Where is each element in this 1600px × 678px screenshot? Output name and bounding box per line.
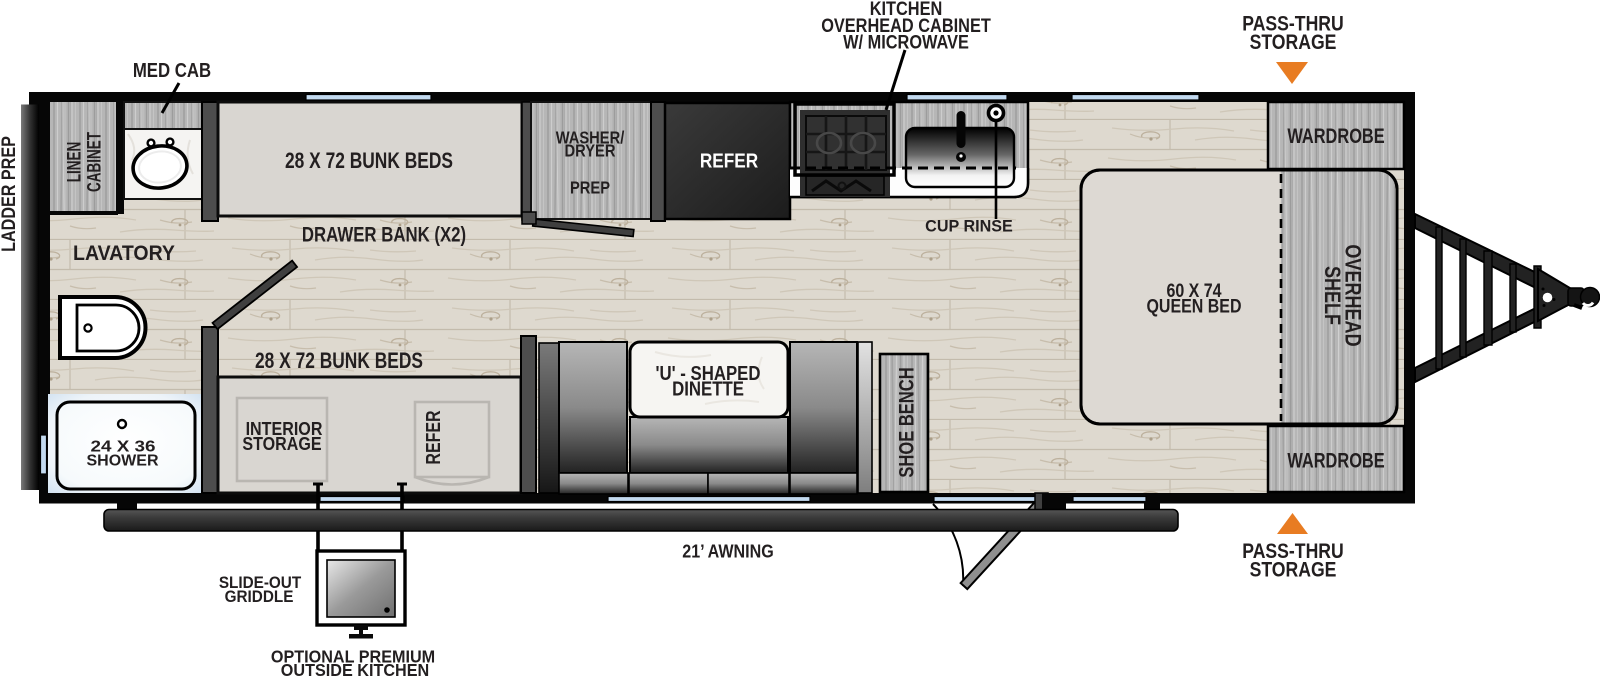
svg-text:REFER: REFER	[422, 410, 444, 464]
svg-text:LAVATORY: LAVATORY	[73, 242, 175, 265]
svg-text:REFER: REFER	[700, 149, 759, 172]
svg-text:28 X 72 BUNK BEDS: 28 X 72 BUNK BEDS	[285, 149, 453, 173]
svg-text:LINEN: LINEN	[65, 142, 86, 182]
svg-text:SHOWER: SHOWER	[87, 453, 159, 470]
svg-text:STORAGE: STORAGE	[1250, 31, 1337, 55]
svg-text:21’ AWNING: 21’ AWNING	[682, 541, 773, 562]
svg-text:OUTSIDE KITCHEN: OUTSIDE KITCHEN	[281, 660, 429, 678]
svg-text:MED CAB: MED CAB	[133, 59, 211, 82]
svg-text:CABINET: CABINET	[85, 132, 106, 192]
svg-text:SHELF: SHELF	[1319, 266, 1343, 325]
svg-text:WARDROBE: WARDROBE	[1287, 449, 1384, 472]
svg-text:DRAWER BANK (X2): DRAWER BANK (X2)	[302, 224, 466, 247]
svg-text:28 X 72 BUNK BEDS: 28 X 72 BUNK BEDS	[255, 349, 423, 373]
svg-text:DINETTE: DINETTE	[672, 377, 744, 400]
svg-text:PREP: PREP	[570, 179, 610, 198]
svg-text:DRYER: DRYER	[565, 142, 616, 161]
svg-text:CUP RINSE: CUP RINSE	[925, 216, 1013, 235]
svg-text:LADDER PREP: LADDER PREP	[0, 136, 20, 252]
svg-text:STORAGE: STORAGE	[242, 433, 321, 454]
svg-text:QUEEN BED: QUEEN BED	[1146, 295, 1241, 317]
svg-text:SHOE BENCH: SHOE BENCH	[896, 367, 920, 477]
svg-text:STORAGE: STORAGE	[1250, 558, 1337, 582]
svg-text:W/ MICROWAVE: W/ MICROWAVE	[843, 32, 969, 53]
svg-text:WARDROBE: WARDROBE	[1287, 124, 1384, 147]
svg-text:GRIDDLE: GRIDDLE	[225, 587, 294, 606]
